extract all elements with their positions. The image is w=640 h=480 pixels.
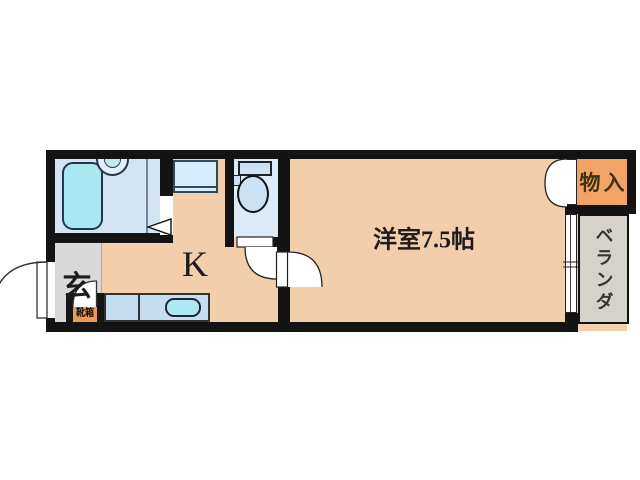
kitchen-counter-divider [138,293,140,322]
veranda-window-sash-line [570,214,571,313]
wall-bathroom-bottom [46,233,173,243]
toilet-tank-icon [238,161,272,176]
washing-machine-lid-line [175,186,216,188]
toilet-bowl-icon [237,175,269,213]
wall-toilet-left [225,150,234,247]
storage-closet: 物入 [577,159,627,205]
wall-kitchen-room-divider [278,150,290,322]
kitchen-sink-icon [165,298,201,317]
wall-bottom [46,322,578,332]
entrance-door-swing-arc [0,262,47,316]
bathtub-icon [62,162,103,230]
entrance-door-opening [46,262,55,318]
entrance-label: 玄 [62,263,91,305]
wall-window-stub [565,313,578,322]
bathroom-divider-line [146,159,148,233]
bathroom-door-opening [160,196,173,235]
veranda-window [565,214,577,313]
shoe-box-label: 靴箱 [76,304,94,319]
veranda-label: ベランダ [589,219,618,321]
wall-top [46,150,636,159]
storage-closet-label: 物入 [580,167,628,197]
wall-closet-bottom [565,205,636,214]
floorplan-canvas: 靴箱 物入 [0,0,640,480]
storage-closet-door-panel [565,159,577,205]
washing-machine-icon [173,160,218,193]
main-room-label: 洋室7.5帖 [373,220,475,255]
kitchen-label: K [182,243,208,285]
room-door-opening [278,252,290,287]
